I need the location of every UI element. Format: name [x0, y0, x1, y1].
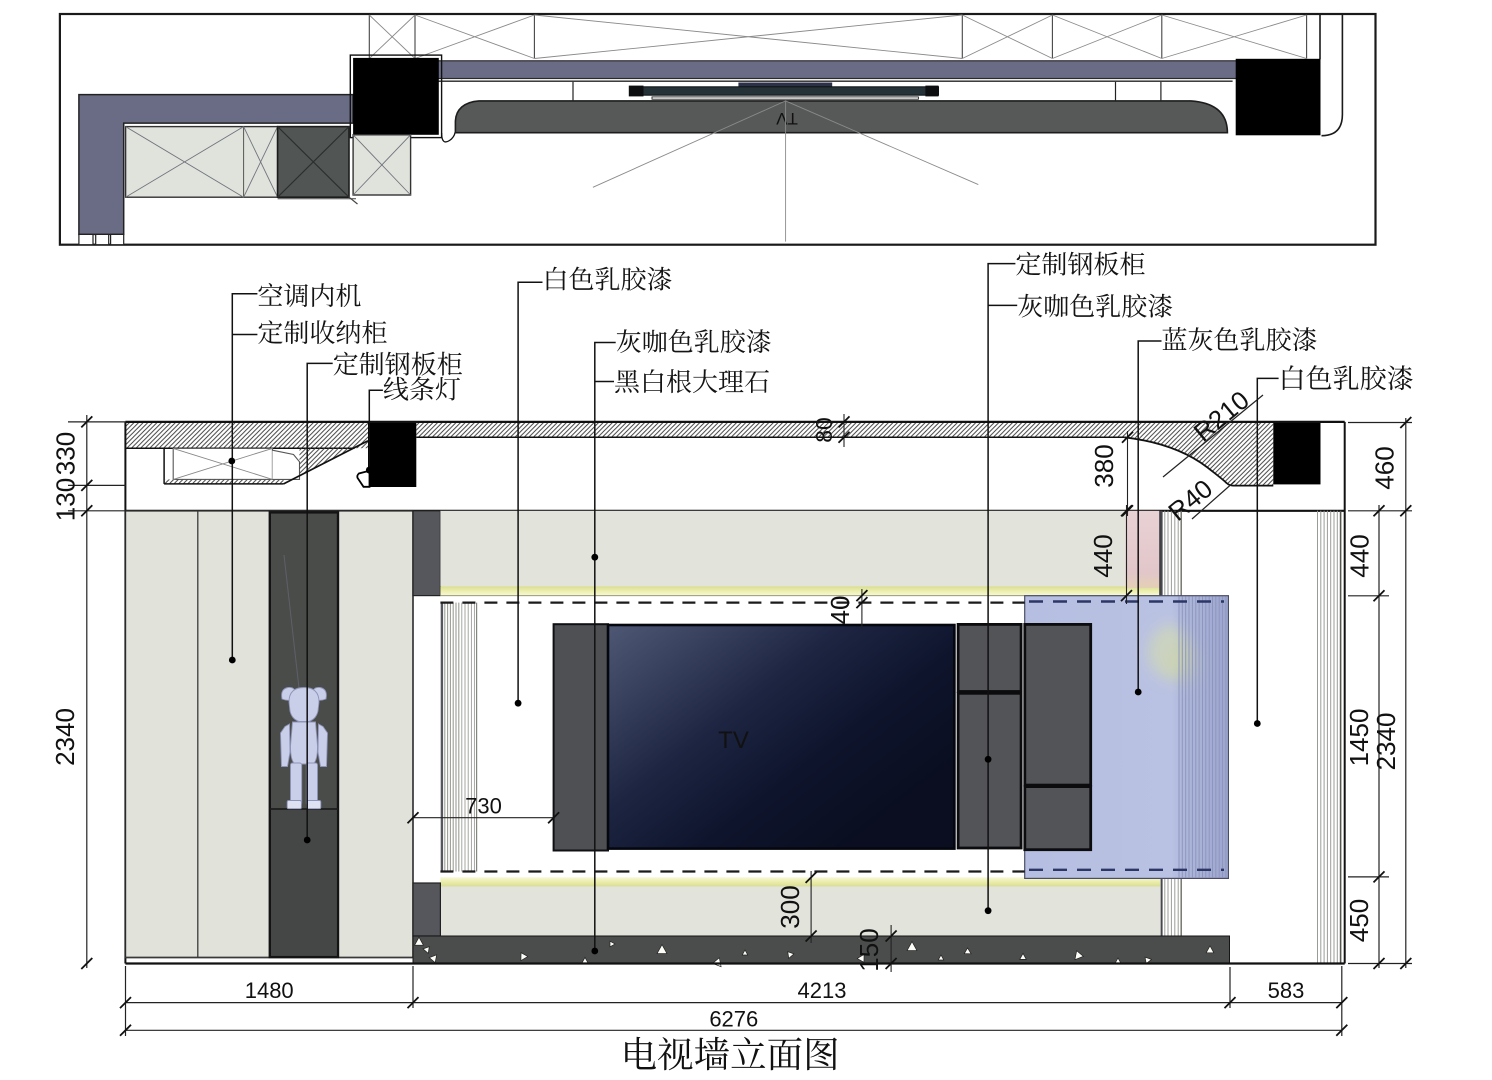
svg-text:150: 150 — [854, 928, 884, 971]
svg-text:380: 380 — [1089, 444, 1119, 487]
svg-text:440: 440 — [1088, 534, 1118, 577]
svg-text:583: 583 — [1268, 978, 1305, 1003]
svg-text:300: 300 — [775, 885, 805, 928]
svg-text:440: 440 — [1345, 534, 1375, 577]
svg-text:1480: 1480 — [245, 978, 294, 1003]
svg-text:80: 80 — [811, 417, 837, 443]
svg-text:TV: TV — [718, 727, 749, 754]
svg-text:2340: 2340 — [50, 708, 80, 766]
svg-text:460: 460 — [1370, 446, 1400, 489]
svg-text:1450: 1450 — [1344, 709, 1374, 767]
svg-text:2340: 2340 — [1371, 713, 1401, 771]
svg-text:450: 450 — [1344, 899, 1374, 942]
svg-text:4213: 4213 — [798, 978, 847, 1003]
svg-text:40: 40 — [825, 596, 855, 625]
svg-text:TV: TV — [775, 109, 797, 128]
svg-text:730: 730 — [465, 794, 502, 819]
svg-text:6276: 6276 — [709, 1007, 758, 1032]
svg-text:330: 330 — [51, 432, 81, 475]
svg-text:130: 130 — [51, 478, 81, 521]
